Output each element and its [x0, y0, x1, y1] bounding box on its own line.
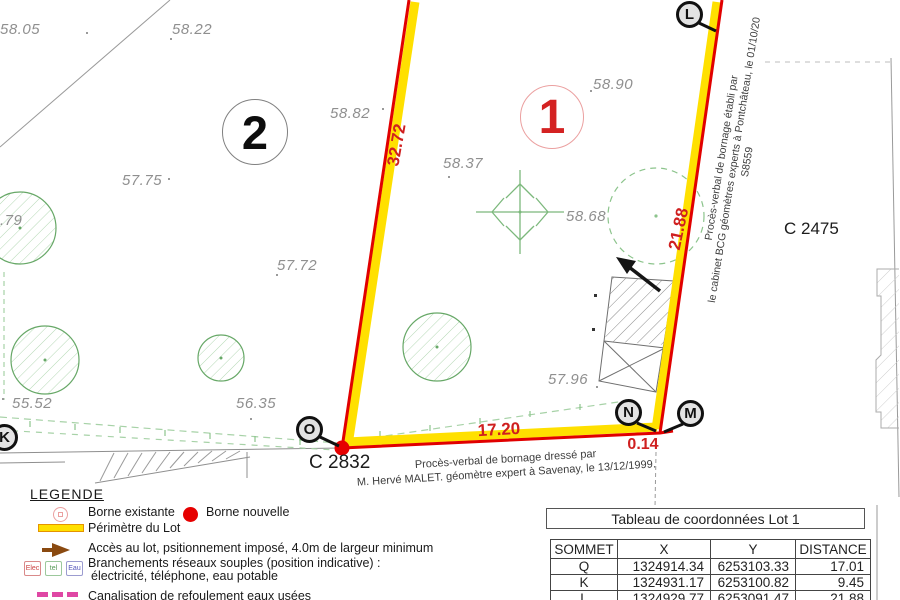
table-row: Q 1324914.34 6253103.33 17.01	[551, 559, 871, 575]
elevation-label: 58.37	[443, 155, 483, 172]
elevation-label: 57.72	[277, 257, 317, 274]
canalisation-icon	[67, 592, 78, 597]
survey-plan-page: 2 1 L O N M K 58.05 58.22 58.90 58.82 58…	[0, 0, 900, 600]
table-row: K 1324931.17 6253100.82 9.45	[551, 575, 871, 591]
road-edge	[0, 448, 342, 483]
lot-perimeter-yellow	[347, 2, 717, 445]
legend-acces: Accès au lot, psitionnement imposé, 4.0m…	[88, 541, 433, 555]
elevation-label: 56.35	[236, 395, 276, 412]
vertex-M: M	[677, 400, 704, 427]
table-row: L 1324929.77 6253091.47 21.88	[551, 591, 871, 600]
elevation-label: 58.90	[593, 76, 633, 93]
legend-canalisation: Canalisation de refoulement eaux usées	[88, 589, 311, 600]
branchement-elec-icon: Elec	[24, 561, 41, 576]
lot-2-number: 2	[242, 105, 268, 160]
elevation-label: .79	[0, 212, 22, 229]
legend-branchements-1: Branchements réseaux souples (position i…	[88, 556, 381, 570]
neighbour-building-right	[876, 269, 899, 428]
perimetre-icon	[38, 524, 84, 532]
elevation-label: 58.68	[566, 208, 606, 225]
vertex-L: L	[676, 1, 703, 28]
elevation-ticks	[2, 32, 598, 420]
borne-nouvelle-icon	[183, 507, 198, 522]
legend-perimetre: Périmètre du Lot	[88, 521, 180, 535]
road-hatching	[100, 451, 240, 481]
branchement-eau-icon: Eau	[66, 561, 83, 576]
legend-title: LEGENDE	[30, 486, 104, 502]
vertex-O: O	[296, 416, 323, 443]
col-y: Y	[711, 540, 796, 559]
dimension-bottom: 17.20	[477, 419, 521, 441]
coord-table-header: SOMMET X Y DISTANCE	[551, 540, 871, 559]
parcel-label-right: C 2475	[784, 219, 839, 239]
coord-table-title: Tableau de coordonnées Lot 1	[546, 508, 865, 529]
legend-branchements-2: électricité, téléphone, eau potable	[91, 569, 278, 583]
lot-2-circle: 2	[222, 99, 288, 165]
legend-borne-existante: Borne existante	[88, 505, 175, 519]
vertex-N: N	[615, 399, 642, 426]
coord-table: SOMMET X Y DISTANCE Q 1324914.34 6253103…	[550, 539, 871, 600]
col-distance: DISTANCE	[796, 540, 871, 559]
borne-existante-icon	[53, 507, 68, 522]
col-sommet: SOMMET	[551, 540, 618, 559]
elevation-label: 58.22	[172, 21, 212, 38]
canalisation-icon	[52, 592, 63, 597]
lot-1-circle: 1	[520, 85, 584, 149]
legend-borne-nouvelle: Borne nouvelle	[206, 505, 289, 519]
branchement-tel-icon: tel	[45, 561, 62, 576]
col-x: X	[618, 540, 711, 559]
elevation-label: 58.05	[0, 21, 40, 38]
elevation-label: 57.96	[548, 371, 588, 388]
elevation-label: 55.52	[12, 395, 52, 412]
acces-icon	[42, 542, 74, 558]
lot-1-number: 1	[539, 90, 566, 145]
elevation-label: 58.82	[330, 105, 370, 122]
canalisation-icon	[37, 592, 48, 597]
elevation-label: 57.75	[122, 172, 162, 189]
trees	[0, 192, 471, 394]
conifer-symbol	[476, 170, 564, 254]
